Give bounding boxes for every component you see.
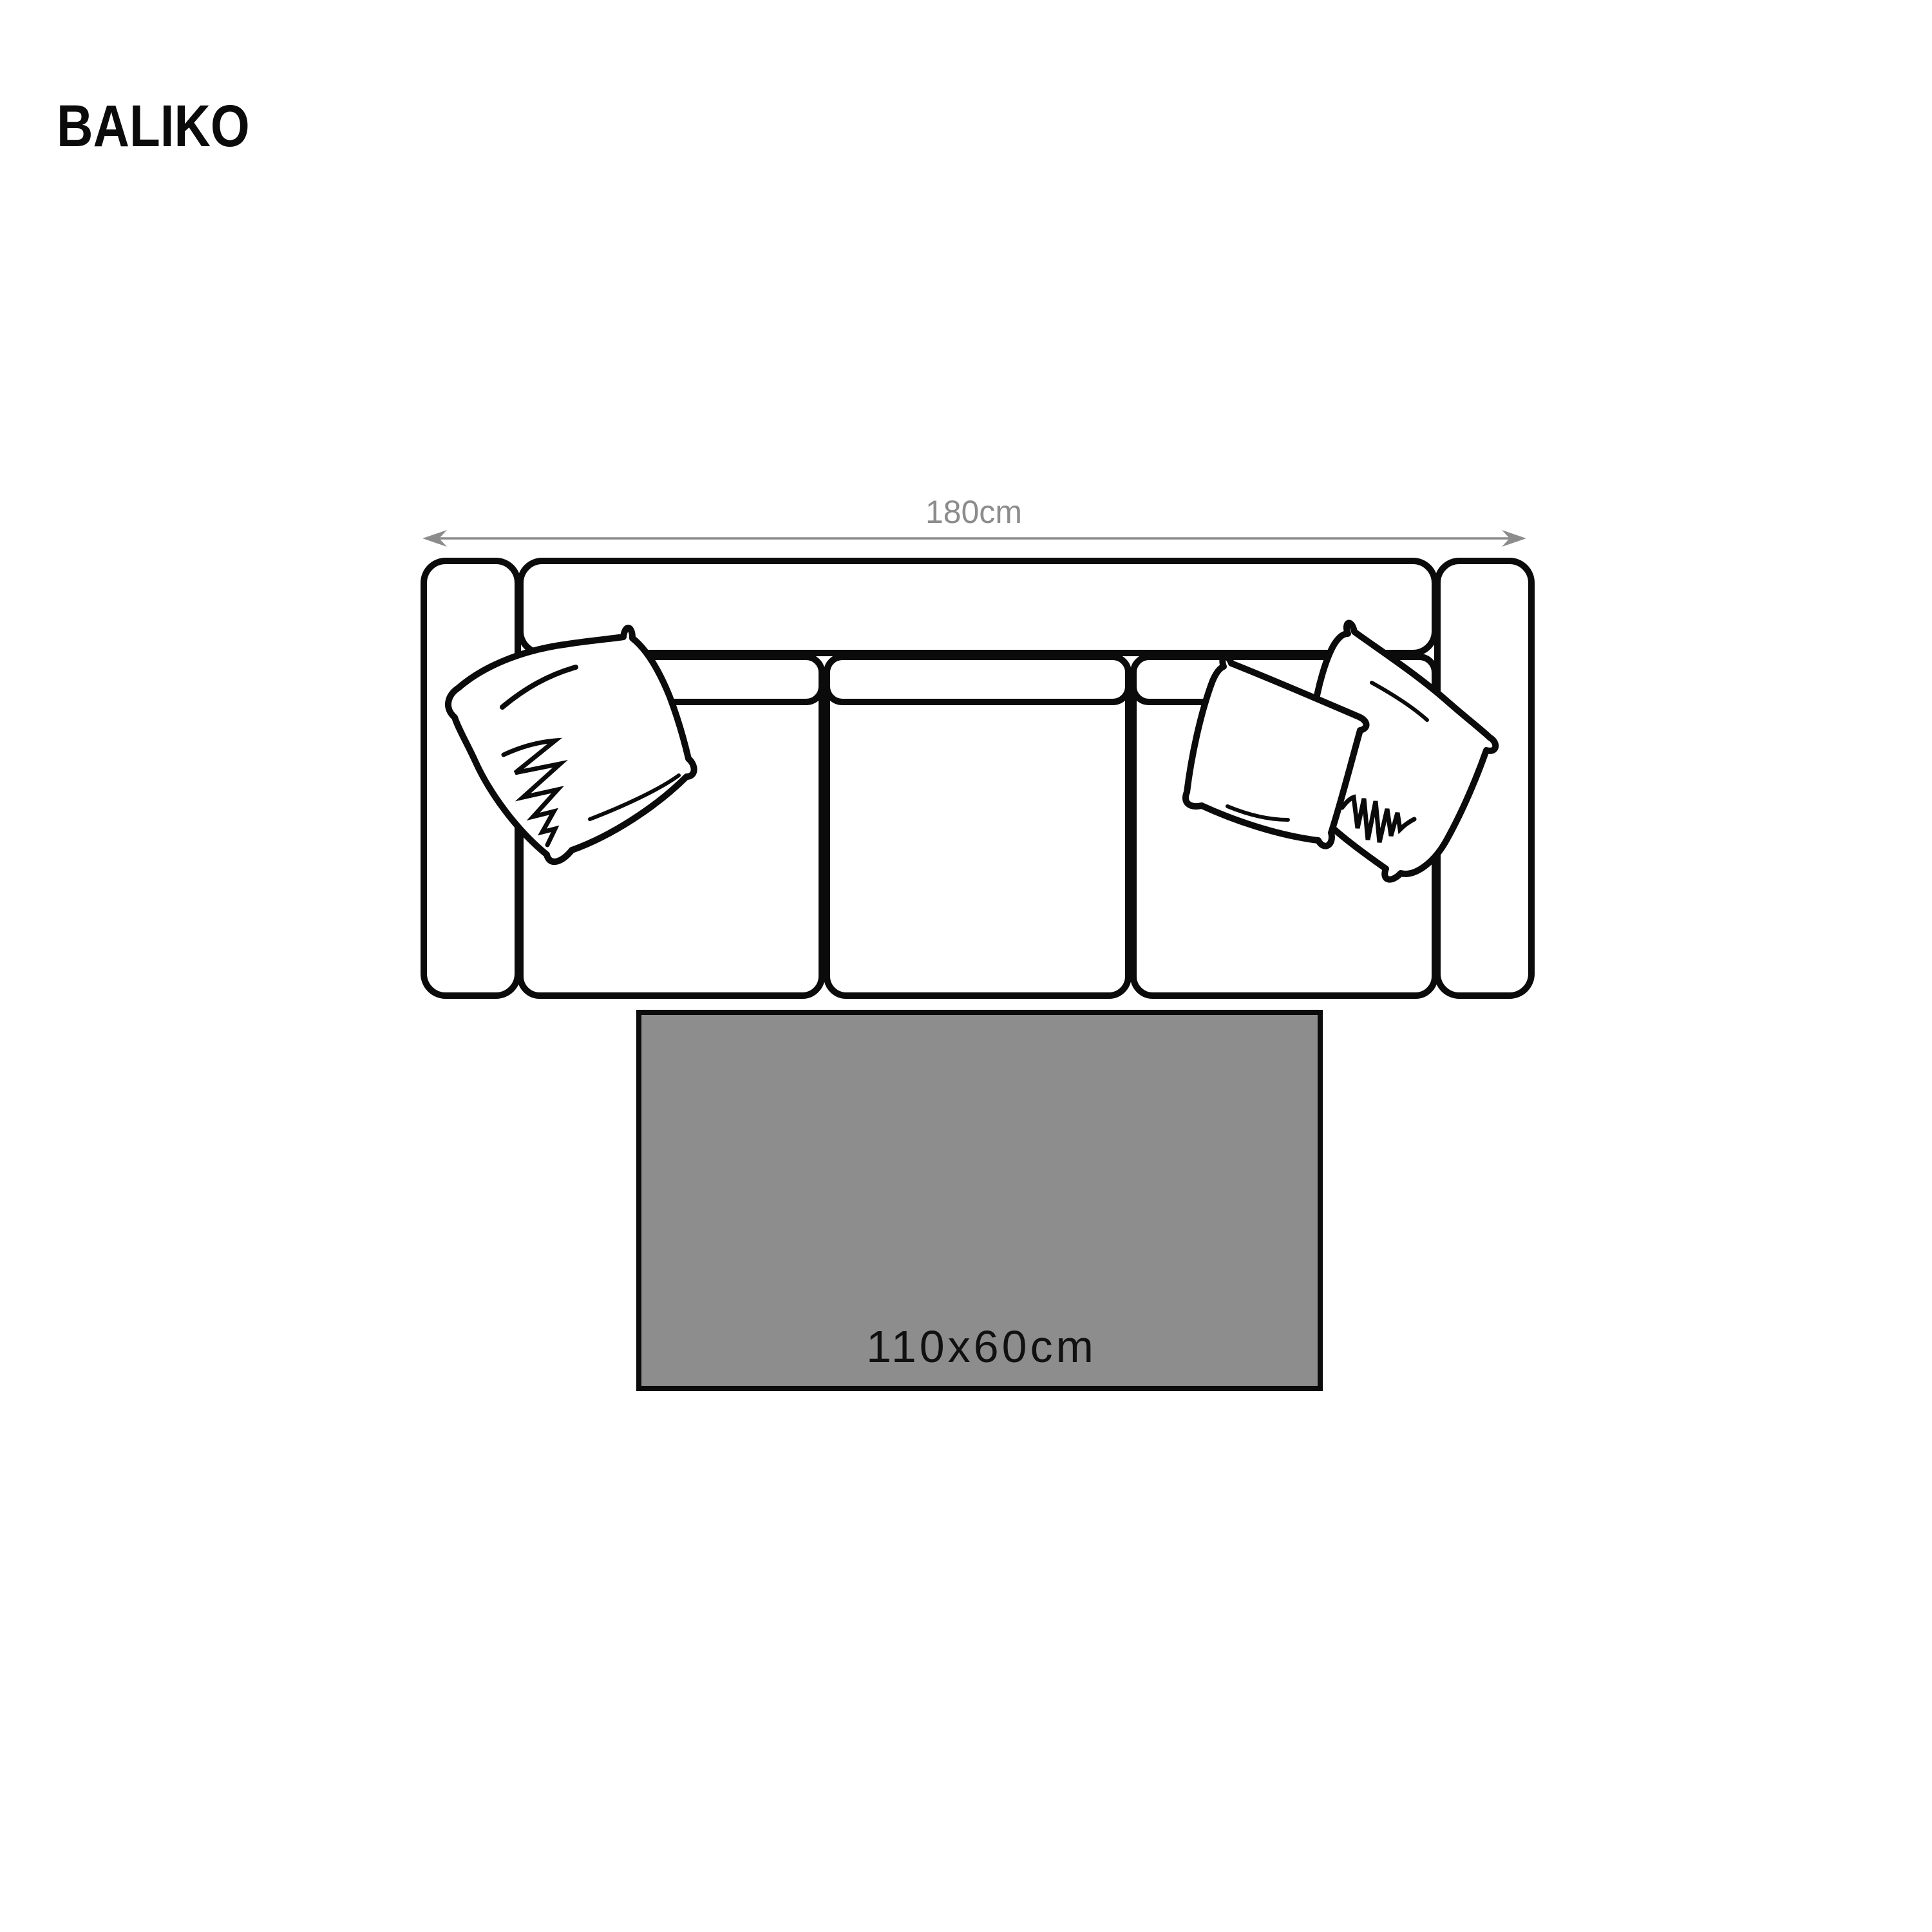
rug-size-label: 110x60cm xyxy=(866,1324,1097,1369)
page: BALIKO xyxy=(0,0,1932,1932)
dimension-arrow xyxy=(422,530,1526,547)
sofa-seat-center xyxy=(827,657,1128,996)
sofa-top-view-diagram xyxy=(0,0,1932,1932)
dimension-label: 180cm xyxy=(925,496,1022,528)
sofa-backrest xyxy=(520,561,1435,653)
sofa-back-cushion-center xyxy=(827,657,1128,702)
